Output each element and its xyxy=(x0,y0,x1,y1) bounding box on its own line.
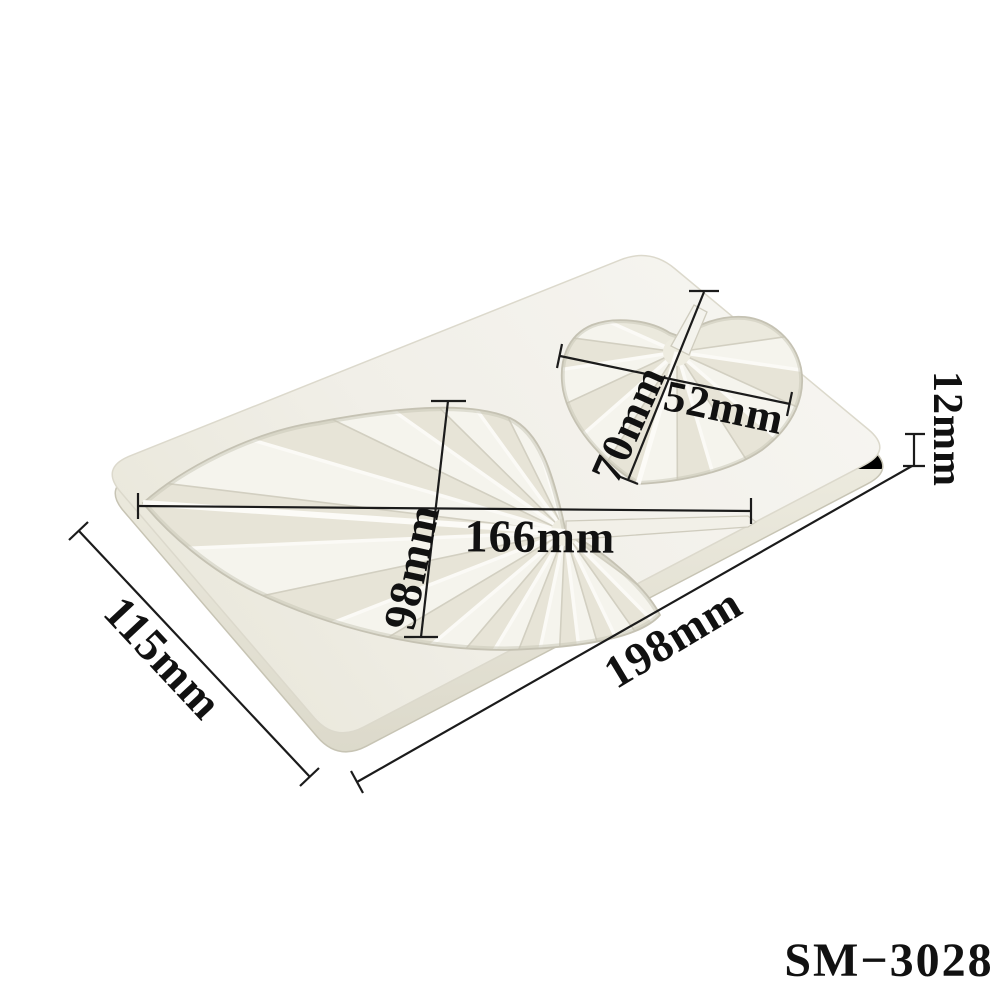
dim-label-thickness: 12mm xyxy=(926,371,968,487)
dim-label-large-leaf-length: 166mm xyxy=(464,513,615,560)
mold-illustration xyxy=(0,0,1000,1000)
product-photo: 166mm 98mm 52mm 70mm 12mm 115mm 198mm SM… xyxy=(0,0,1000,1000)
product-code: SM−3028 xyxy=(784,937,993,985)
